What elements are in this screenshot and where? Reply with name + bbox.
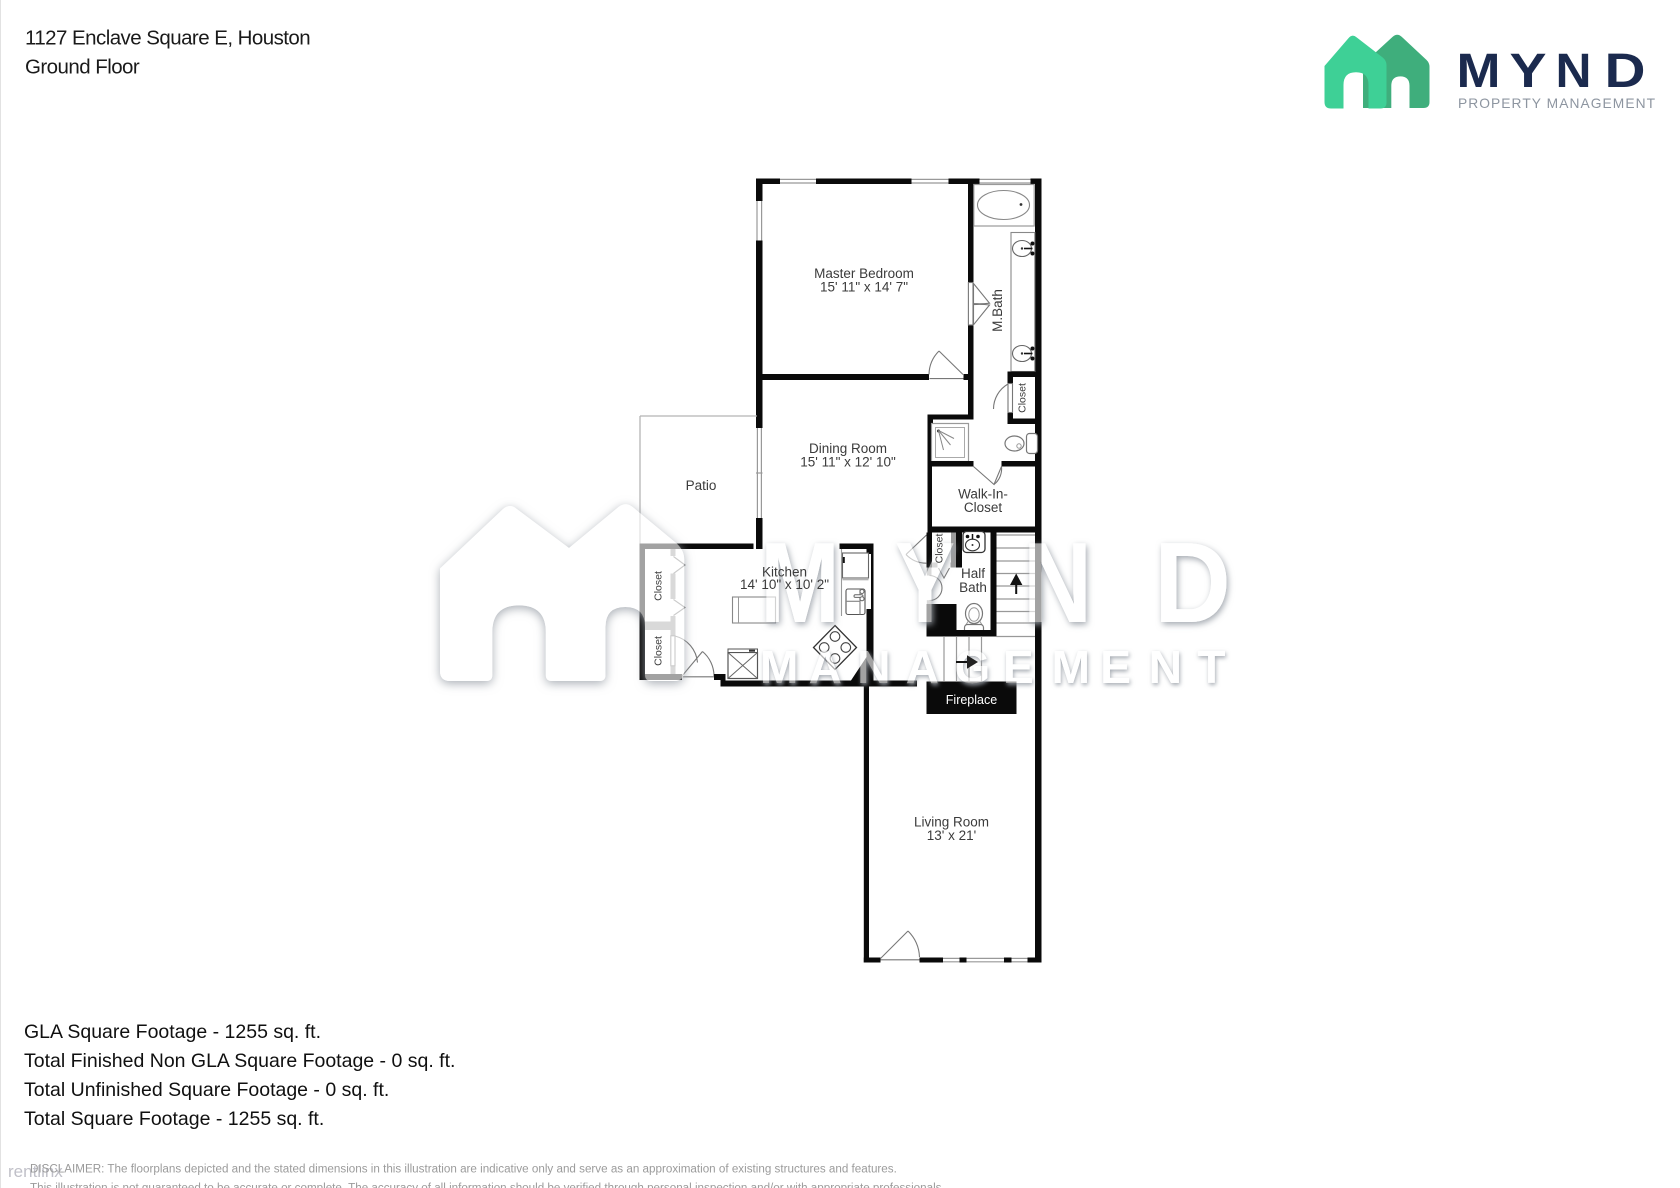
svg-text:15' 11" x 14' 7": 15' 11" x 14' 7" bbox=[820, 280, 908, 295]
svg-text:This illustration is not guara: This illustration is not guaranteed to b… bbox=[30, 1182, 945, 1188]
svg-text:13' x 21': 13' x 21' bbox=[927, 828, 976, 843]
svg-text:15' 11" x 12' 10": 15' 11" x 12' 10" bbox=[800, 455, 896, 470]
svg-text:14' 10" x 10' 2": 14' 10" x 10' 2" bbox=[740, 577, 829, 592]
svg-text:Ground Floor: Ground Floor bbox=[25, 56, 140, 79]
svg-text:D: D bbox=[1154, 520, 1231, 647]
svg-text:Y: Y bbox=[1510, 45, 1547, 98]
svg-text:N: N bbox=[1556, 45, 1592, 98]
svg-text:Fireplace: Fireplace bbox=[946, 693, 997, 707]
svg-text:Y: Y bbox=[895, 520, 955, 647]
svg-text:Total Unfinished Square Footag: Total Unfinished Square Footage - 0 sq. … bbox=[24, 1079, 389, 1101]
svg-text:Closet: Closet bbox=[964, 500, 1003, 515]
svg-text:D: D bbox=[1605, 45, 1646, 98]
svg-text:DISCLAIMER: The floorplans dep: DISCLAIMER: The floorplans depicted and … bbox=[30, 1163, 897, 1176]
svg-text:Bath: Bath bbox=[959, 580, 987, 595]
svg-text:M.Bath: M.Bath bbox=[990, 289, 1005, 332]
svg-text:Total Finished Non GLA Square: Total Finished Non GLA Square Footage - … bbox=[24, 1050, 455, 1072]
svg-text:PROPERTY MANAGEMENT: PROPERTY MANAGEMENT bbox=[1458, 96, 1656, 111]
svg-text:Closet: Closet bbox=[653, 571, 665, 601]
svg-text:Closet: Closet bbox=[934, 534, 946, 564]
svg-text:Half: Half bbox=[961, 566, 985, 581]
svg-text:GLA Square Footage - 1255 sq.: GLA Square Footage - 1255 sq. ft. bbox=[24, 1021, 321, 1043]
svg-text:Total Square Footage - 1255 sq: Total Square Footage - 1255 sq. ft. bbox=[24, 1108, 324, 1130]
svg-text:Closet: Closet bbox=[1017, 383, 1029, 413]
svg-text:Patio: Patio bbox=[686, 478, 717, 493]
svg-text:Closet: Closet bbox=[653, 636, 665, 666]
svg-text:1127 Enclave Square E, Houston: 1127 Enclave Square E, Houston bbox=[25, 27, 310, 50]
svg-text:M: M bbox=[1457, 45, 1501, 98]
svg-text:N: N bbox=[1023, 520, 1092, 647]
